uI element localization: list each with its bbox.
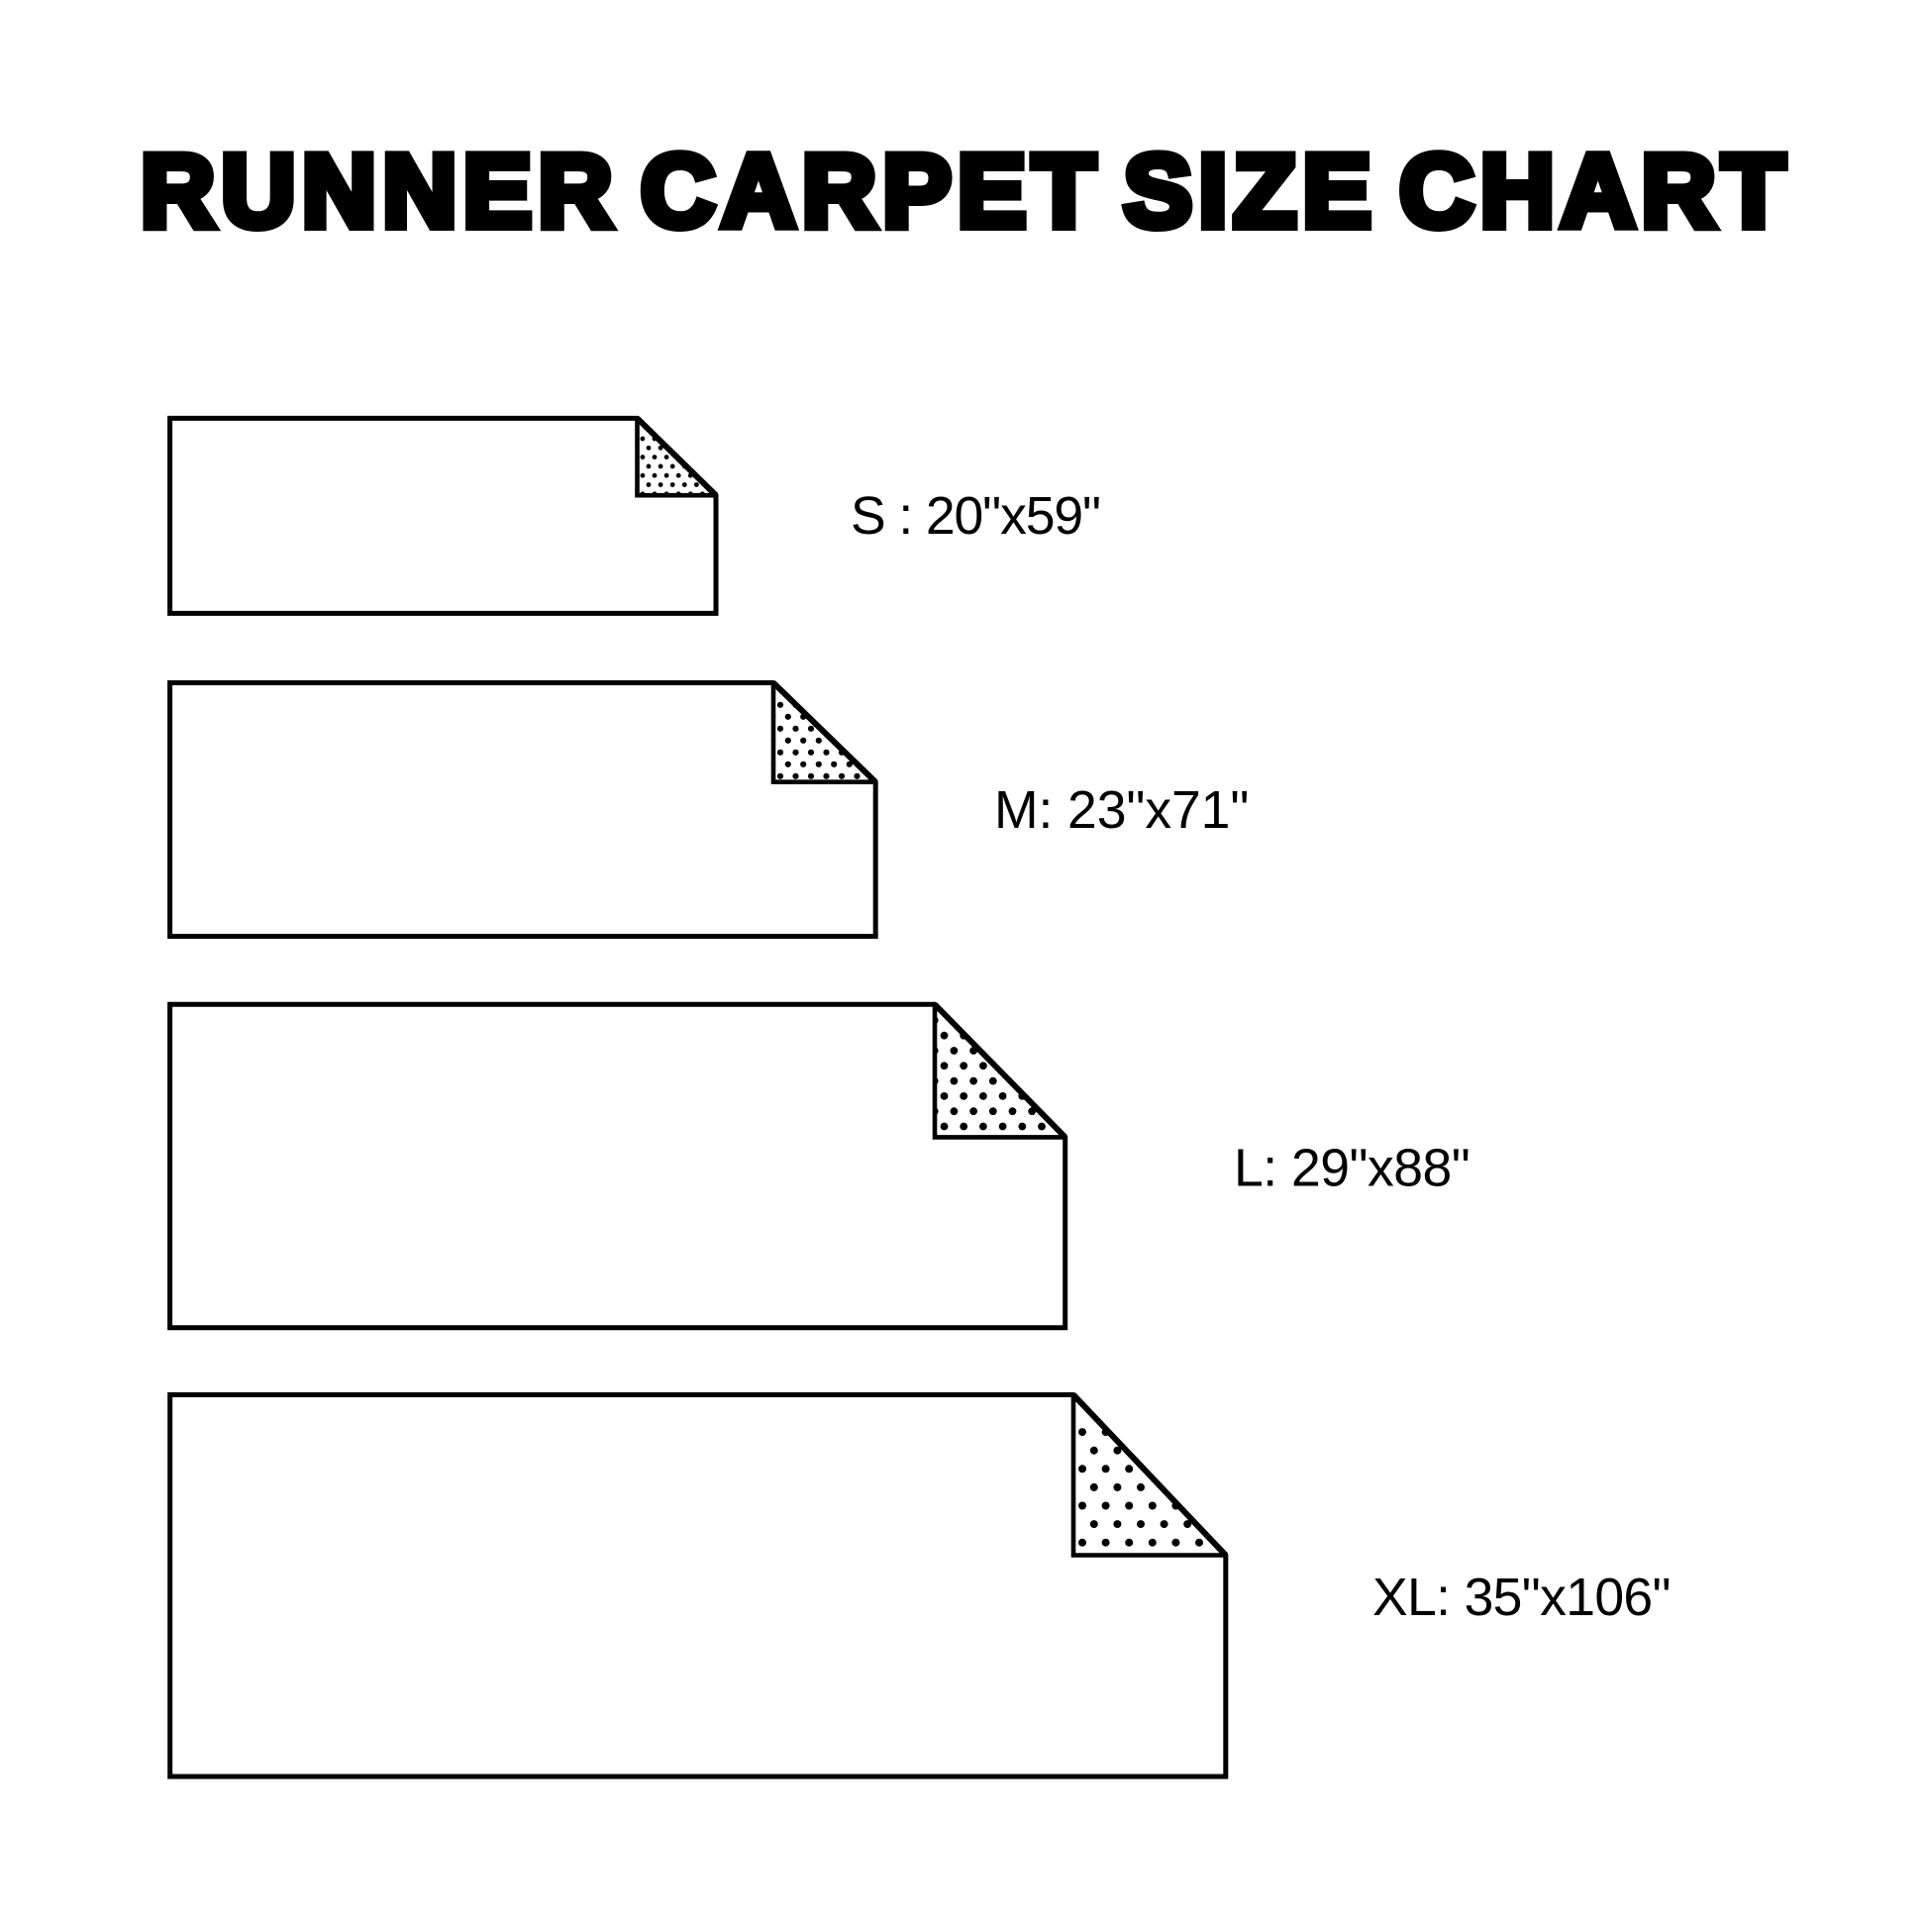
svg-text:XL: 35"x106": XL: 35"x106": [1372, 1569, 1671, 1627]
svg-text:RUNNER CARPET SIZE CHART: RUNNER CARPET SIZE CHART: [141, 135, 1791, 250]
svg-text:S : 20"x59": S : 20"x59": [851, 487, 1100, 546]
svg-text:L: 29"x88": L: 29"x88": [1234, 1140, 1470, 1198]
svg-text:M: 23"x71": M: 23"x71": [994, 781, 1249, 840]
